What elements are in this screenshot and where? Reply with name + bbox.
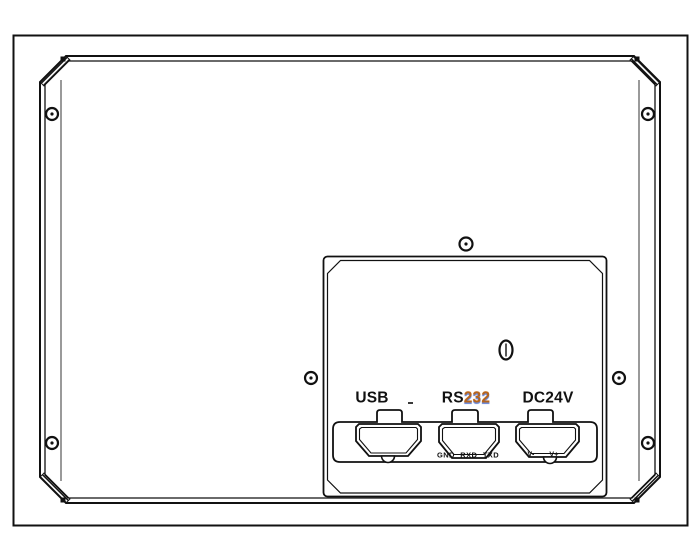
chamfer-hatch-top-right	[630, 56, 660, 86]
power-pin-positive-label: V+	[549, 452, 558, 459]
screw-hole	[642, 437, 654, 449]
screw-hole	[460, 238, 473, 251]
rs232-label-prefix: RS	[442, 389, 464, 406]
screw-hole	[613, 372, 625, 384]
io-panel	[324, 257, 607, 497]
device-rear-drawing	[0, 0, 700, 560]
dc24v-port	[516, 424, 579, 464]
rs232-label-digits: 232	[464, 389, 490, 406]
mounting-slot	[500, 341, 513, 360]
device-outline	[14, 36, 688, 526]
usb-port-notch	[382, 456, 395, 463]
screw-hole	[46, 437, 58, 449]
chamfer-hatch-bottom-left	[40, 473, 70, 503]
mounting-plate	[40, 56, 660, 503]
dc24v-label: DC24V	[523, 390, 574, 406]
stray-mark	[408, 402, 413, 404]
chamfer-hatch-bottom-right	[630, 473, 660, 503]
screw-hole	[46, 108, 58, 120]
usb-label: USB	[355, 390, 388, 406]
chamfer-hatch-top-left	[40, 56, 70, 86]
rs232-label: RS232	[442, 390, 490, 406]
serial-pin-labels: GND RXD TXD	[437, 451, 499, 459]
screw-hole	[305, 372, 317, 384]
usb-port	[356, 424, 421, 463]
screw-hole	[642, 108, 654, 120]
power-pin-negative-label: V-	[527, 452, 534, 459]
